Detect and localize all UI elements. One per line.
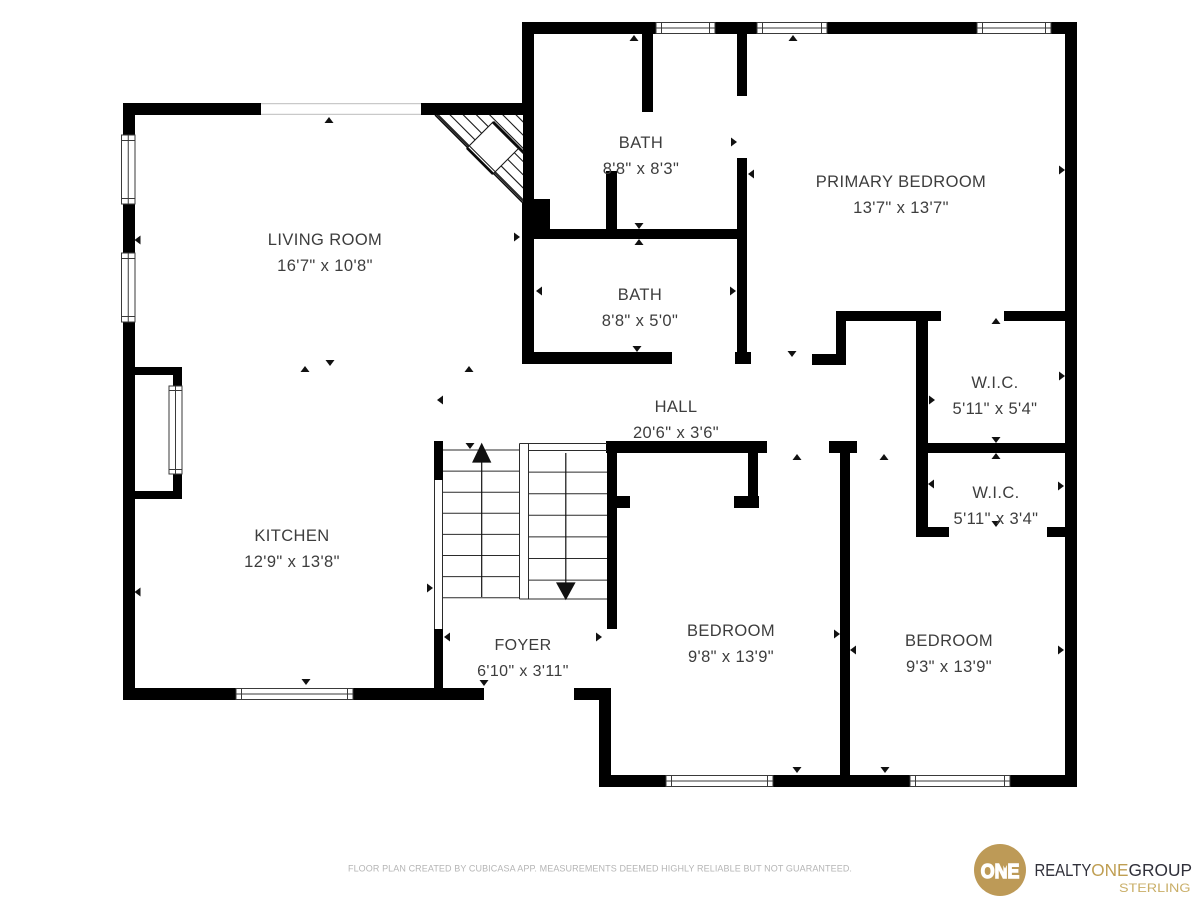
svg-text:GROUP: GROUP [1129, 860, 1193, 880]
svg-text:W.I.C.: W.I.C. [971, 374, 1018, 392]
svg-text:5'11" x 3'4": 5'11" x 3'4" [954, 510, 1039, 528]
svg-text:KITCHEN: KITCHEN [254, 527, 329, 545]
svg-text:16'7" x 10'8": 16'7" x 10'8" [277, 257, 373, 275]
svg-text:LIVING ROOM: LIVING ROOM [268, 231, 382, 249]
svg-text:STERLING: STERLING [1119, 881, 1191, 895]
svg-text:PRIMARY BEDROOM: PRIMARY BEDROOM [816, 173, 986, 191]
svg-text:FOYER: FOYER [494, 637, 551, 654]
svg-text:BATH: BATH [618, 286, 662, 304]
svg-text:13'7" x 13'7": 13'7" x 13'7" [853, 199, 949, 217]
svg-text:5'11" x 5'4": 5'11" x 5'4" [953, 400, 1038, 418]
svg-text:9'8" x 13'9": 9'8" x 13'9" [688, 648, 774, 666]
svg-text:HALL: HALL [655, 398, 698, 416]
svg-text:20'6" x 3'6": 20'6" x 3'6" [633, 424, 719, 442]
svg-text:ONE: ONE [1091, 860, 1128, 880]
svg-text:12'9" x 13'8": 12'9" x 13'8" [244, 553, 340, 571]
svg-text:BEDROOM: BEDROOM [905, 632, 993, 650]
svg-text:REALTY: REALTY [1035, 860, 1092, 880]
svg-text:W.I.C.: W.I.C. [972, 484, 1019, 502]
svg-text:6'10" x 3'11": 6'10" x 3'11" [477, 663, 569, 680]
svg-text:ONE: ONE [981, 861, 1020, 883]
svg-text:BATH: BATH [619, 134, 663, 152]
svg-text:BEDROOM: BEDROOM [687, 622, 775, 640]
svg-text:9'3" x 13'9": 9'3" x 13'9" [906, 658, 992, 676]
svg-text:8'8" x 8'3": 8'8" x 8'3" [603, 160, 680, 178]
svg-text:8'8" x 5'0": 8'8" x 5'0" [602, 312, 679, 330]
svg-text:FLOOR PLAN CREATED BY CUBICASA: FLOOR PLAN CREATED BY CUBICASA APP. MEAS… [348, 864, 852, 874]
